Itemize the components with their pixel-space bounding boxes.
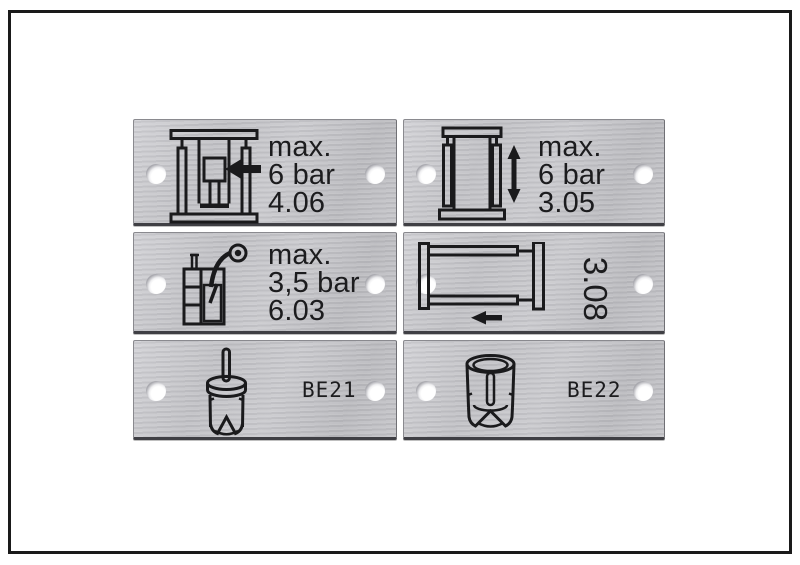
plate-3-05: max. 6 bar 3.05 [403, 119, 665, 226]
mounting-hole [146, 274, 166, 294]
type-code: BE21 [302, 380, 357, 401]
mounting-hole [146, 164, 166, 184]
type-code: 6.03 [268, 297, 360, 325]
plate-text: max. 3,5 bar 6.03 [268, 241, 360, 325]
pin-sleeve-icon [202, 347, 254, 441]
mounting-hole [365, 381, 385, 401]
type-code: BE22 [567, 380, 622, 401]
pressure-value: 6 bar [538, 161, 605, 189]
plate-text: max. 6 bar 4.06 [268, 133, 335, 217]
max-label: max. [268, 133, 335, 161]
mounting-hole [633, 274, 653, 294]
mounting-hole [633, 164, 653, 184]
plate-3-08: 3.08 [403, 232, 665, 334]
mounting-hole [633, 381, 653, 401]
catalog-photo: max. 6 bar 4.06 max. 6 bar 3.05 [0, 0, 800, 565]
spray-tank-icon [180, 243, 252, 327]
plate-be21: BE21 [133, 340, 397, 440]
max-label: max. [268, 241, 360, 269]
max-label: max. [538, 133, 605, 161]
horizontal-slide-frame-icon [416, 242, 548, 326]
mounting-hole [146, 381, 166, 401]
socket-sleeve-icon [462, 349, 520, 437]
type-code: 4.06 [268, 189, 335, 217]
press-clamp-icon [166, 129, 262, 224]
mounting-hole [416, 164, 436, 184]
type-code: 3.05 [538, 189, 605, 217]
plate-text: max. 6 bar 3.05 [538, 133, 605, 217]
type-code-rotated: 3.08 [578, 239, 612, 339]
mounting-hole [365, 274, 385, 294]
pressure-value: 3,5 bar [268, 269, 360, 297]
plate-be22: BE22 [403, 340, 665, 440]
photo-border-frame [8, 10, 792, 554]
plate-4-06: max. 6 bar 4.06 [133, 119, 397, 226]
pressure-value: 6 bar [268, 161, 335, 189]
mounting-hole [416, 381, 436, 401]
vertical-stroke-frame-icon [436, 126, 524, 222]
plate-6-03: max. 3,5 bar 6.03 [133, 232, 397, 334]
mounting-hole [365, 164, 385, 184]
